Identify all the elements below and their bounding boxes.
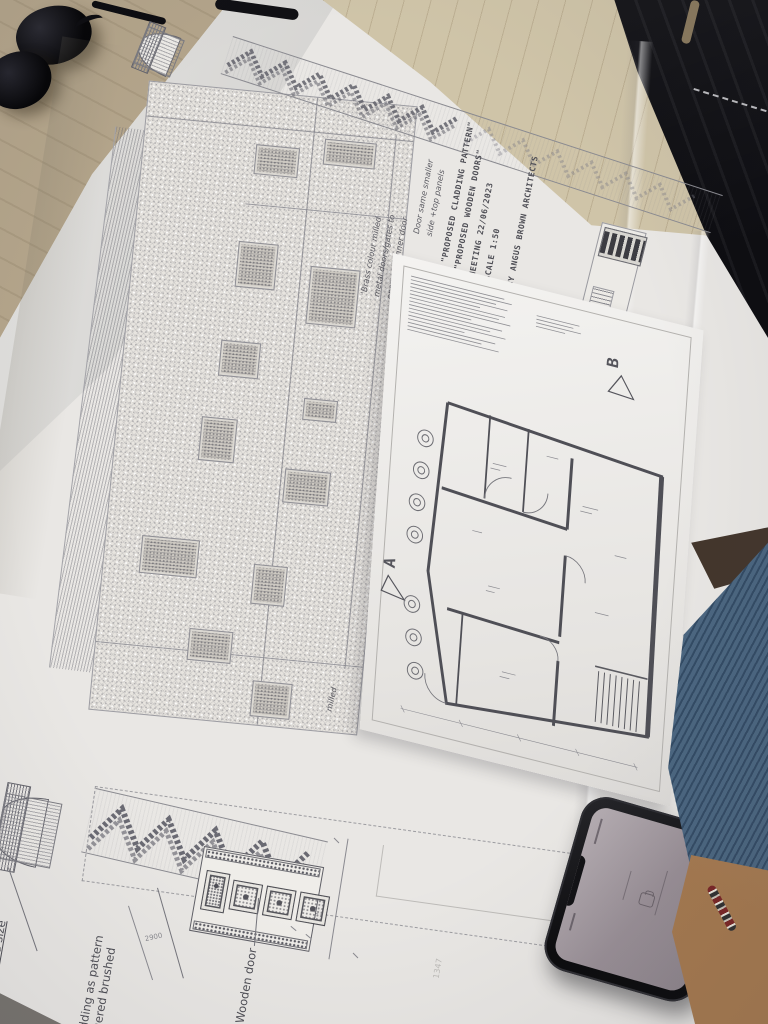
dimension-faint-1347: 1347 xyxy=(431,958,446,980)
dimension-tick xyxy=(353,953,359,959)
phone-status-bar xyxy=(569,913,576,931)
facade-window xyxy=(198,416,238,463)
plan-door-arcs xyxy=(423,460,591,735)
phone-empty-state-icon xyxy=(638,892,656,909)
door-ornate-panel xyxy=(200,870,231,914)
sunglasses-arm xyxy=(214,0,299,21)
label-and-size: and size xyxy=(0,919,10,969)
door-panel xyxy=(295,891,330,926)
facade-window xyxy=(235,241,279,291)
floor-plan-sheet: B A xyxy=(360,253,704,807)
minaret-shaft xyxy=(0,793,62,869)
phone-status-bar xyxy=(594,819,603,845)
svg-text:B: B xyxy=(603,355,622,370)
door-panel xyxy=(262,886,297,921)
phone-screen-text-line xyxy=(622,870,631,899)
facade-window xyxy=(302,398,338,423)
plan-trees xyxy=(397,427,440,680)
plan-walls xyxy=(419,401,667,753)
facade-window xyxy=(305,266,360,329)
phone-notch xyxy=(565,855,587,907)
door-pattern-band xyxy=(598,227,648,267)
floor-plan-drawing: B A xyxy=(360,253,704,807)
dimension-2900: 2900 xyxy=(144,931,164,945)
facade-window xyxy=(323,139,377,170)
plan-stairs xyxy=(591,666,647,734)
facade-window xyxy=(187,628,234,664)
facade-window xyxy=(249,680,292,720)
plan-notes-block xyxy=(407,276,581,372)
plan-room-labels xyxy=(463,439,632,705)
plan-section-marker-b: B xyxy=(602,355,636,399)
photo-of-architectural-drawings: "PROPOSED CLADDING PATTERN" "PROPOSED WO… xyxy=(0,0,768,1024)
label-wooden-door: Wooden door xyxy=(232,947,262,1024)
label-cladding: al cladding as pattern in laquered brush… xyxy=(71,934,135,1024)
underline xyxy=(8,868,38,952)
phone-screen-text-line xyxy=(654,871,668,915)
facade-window xyxy=(253,144,300,178)
title-author: BY ANGUS BROWN ARCHITECTS xyxy=(505,155,542,288)
facade-window xyxy=(218,340,261,380)
facade-window xyxy=(139,535,200,578)
facade-window xyxy=(282,468,331,506)
facade-window xyxy=(250,564,288,607)
